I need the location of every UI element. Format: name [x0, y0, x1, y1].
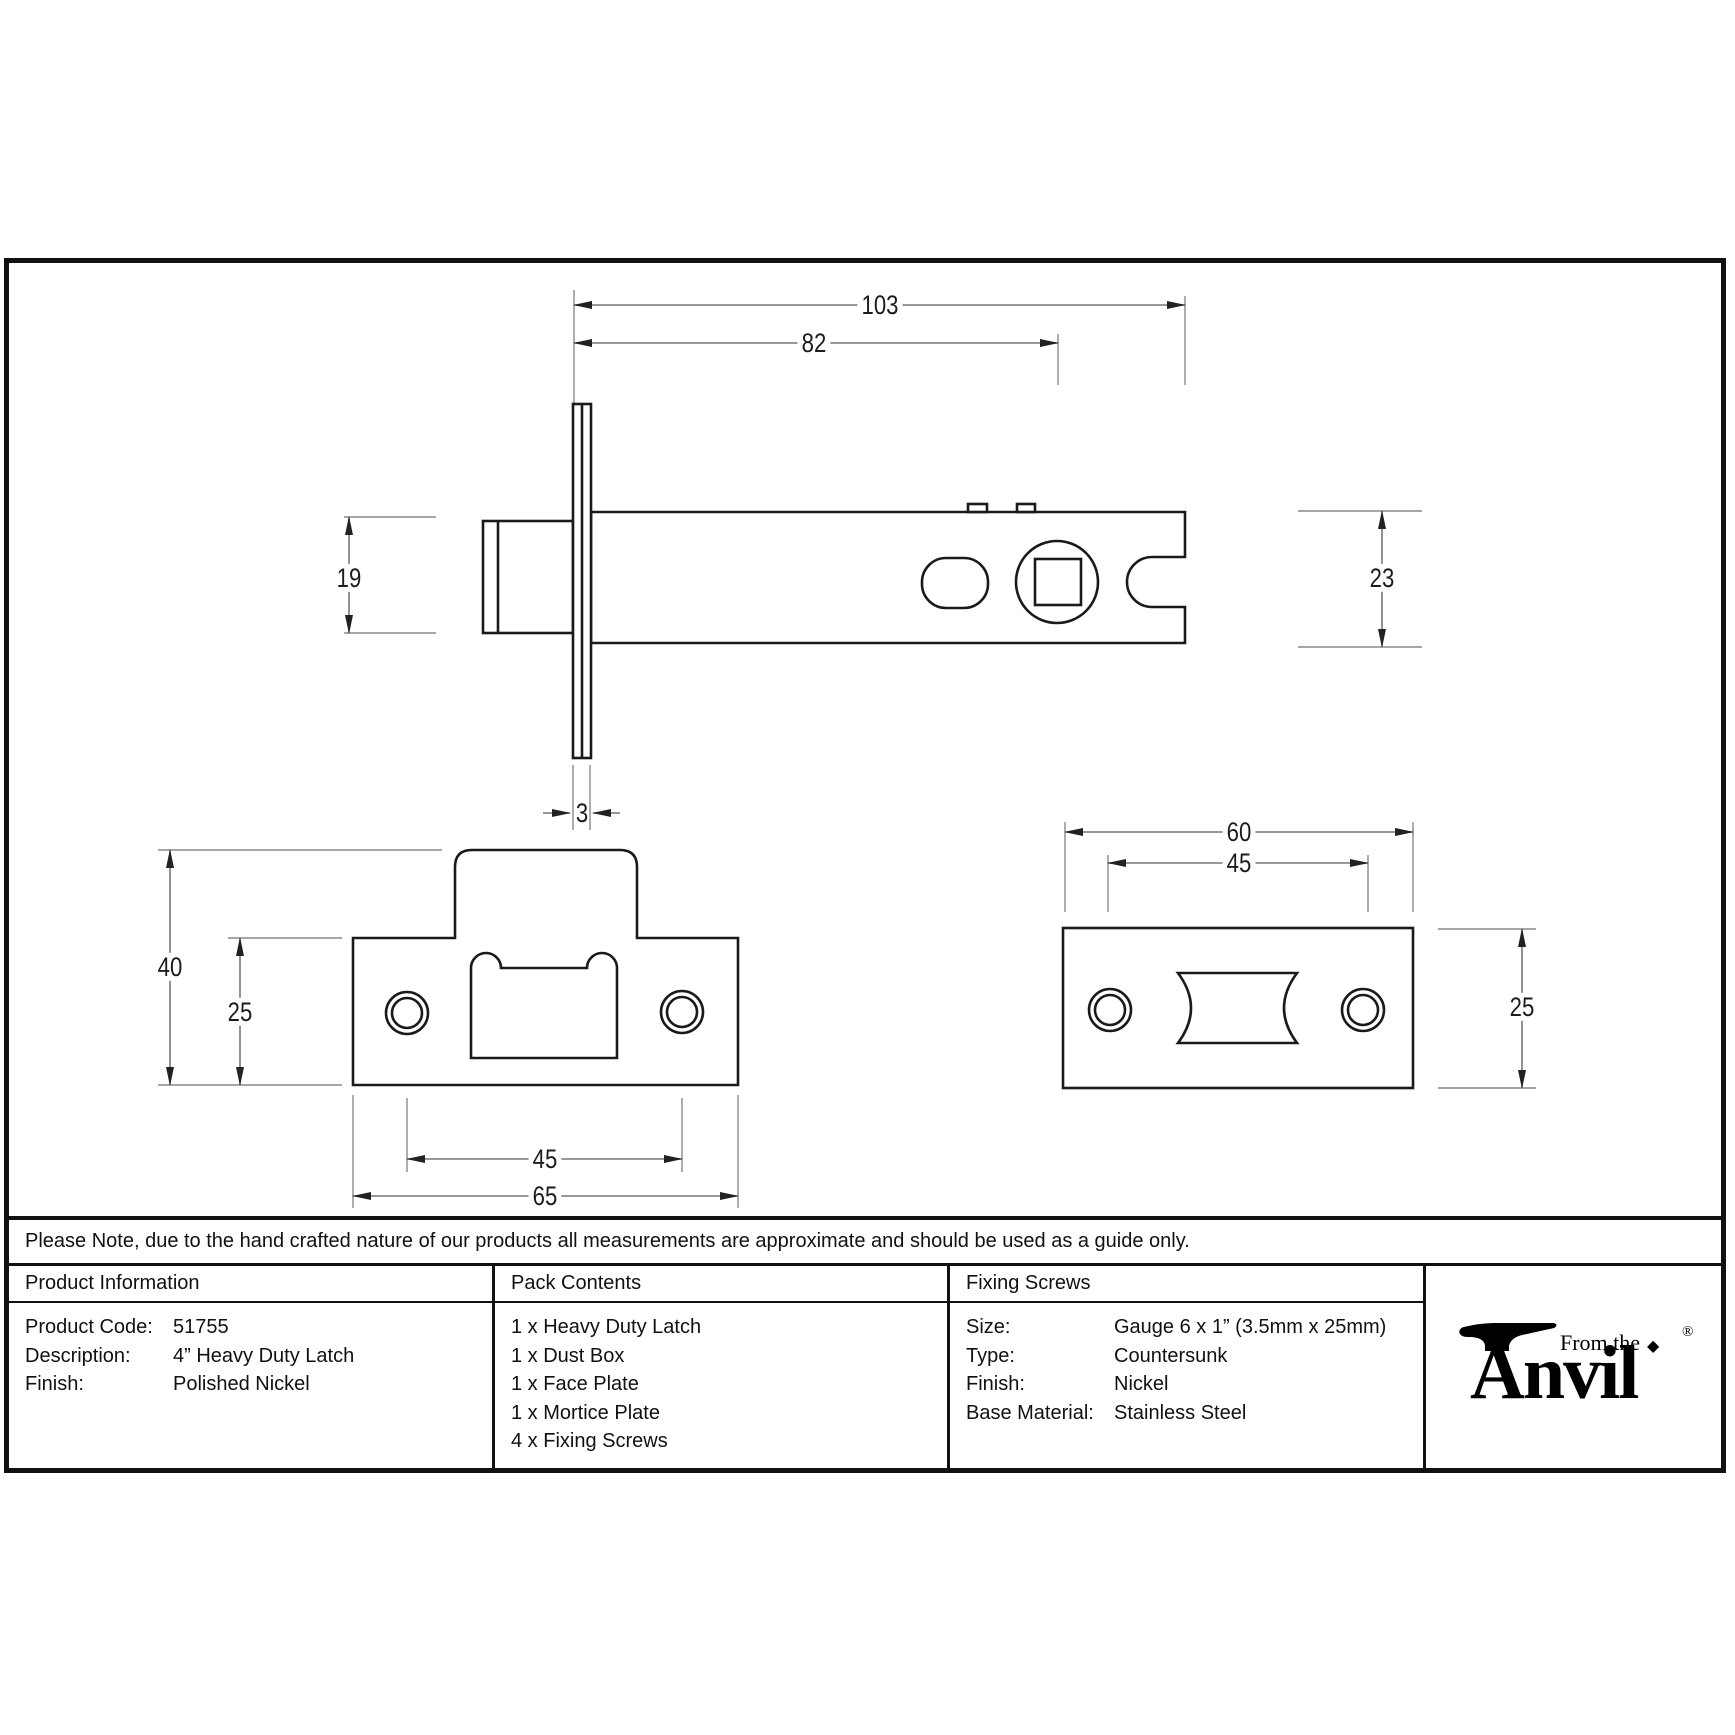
table-row: Product Code:51755: [25, 1313, 492, 1342]
logo-brand-text: Anvil: [1470, 1335, 1637, 1411]
registered-mark-icon: ®: [1682, 1324, 1693, 1341]
table-row: Size:Gauge 6 x 1” (3.5mm x 25mm): [966, 1313, 1423, 1342]
product-information-column: Product Information Product Code:51755 D…: [9, 1266, 492, 1468]
fixing-screws-column: Fixing Screws Size:Gauge 6 x 1” (3.5mm x…: [947, 1266, 1423, 1468]
list-item: 1 x Heavy Duty Latch: [511, 1313, 947, 1342]
pack-contents-column: Pack Contents 1 x Heavy Duty Latch 1 x D…: [492, 1266, 947, 1468]
list-item: 4 x Fixing Screws: [511, 1427, 947, 1456]
spec-table: Product Information Product Code:51755 D…: [9, 1266, 1721, 1468]
measurement-note: Please Note, due to the hand crafted nat…: [9, 1216, 1721, 1266]
brand-logo-cell: From the Anvil ◆ ®: [1423, 1266, 1721, 1468]
table-row: Base Material:Stainless Steel: [966, 1399, 1423, 1428]
product-drawing-page: 103 82 19 23 3 40 25 45 65 60 45 25 Plea…: [0, 0, 1735, 1735]
list-item: 1 x Mortice Plate: [511, 1399, 947, 1428]
table-row: Description:4” Heavy Duty Latch: [25, 1342, 492, 1371]
pack-contents-header: Pack Contents: [495, 1266, 947, 1303]
table-row: Type:Countersunk: [966, 1342, 1423, 1371]
list-item: 1 x Face Plate: [511, 1370, 947, 1399]
diamond-icon: ◆: [1647, 1336, 1659, 1356]
product-information-header: Product Information: [9, 1266, 492, 1303]
table-row: Finish:Nickel: [966, 1370, 1423, 1399]
fixing-screws-header: Fixing Screws: [950, 1266, 1423, 1303]
list-item: 1 x Dust Box: [511, 1342, 947, 1371]
table-row: Finish:Polished Nickel: [25, 1370, 492, 1399]
